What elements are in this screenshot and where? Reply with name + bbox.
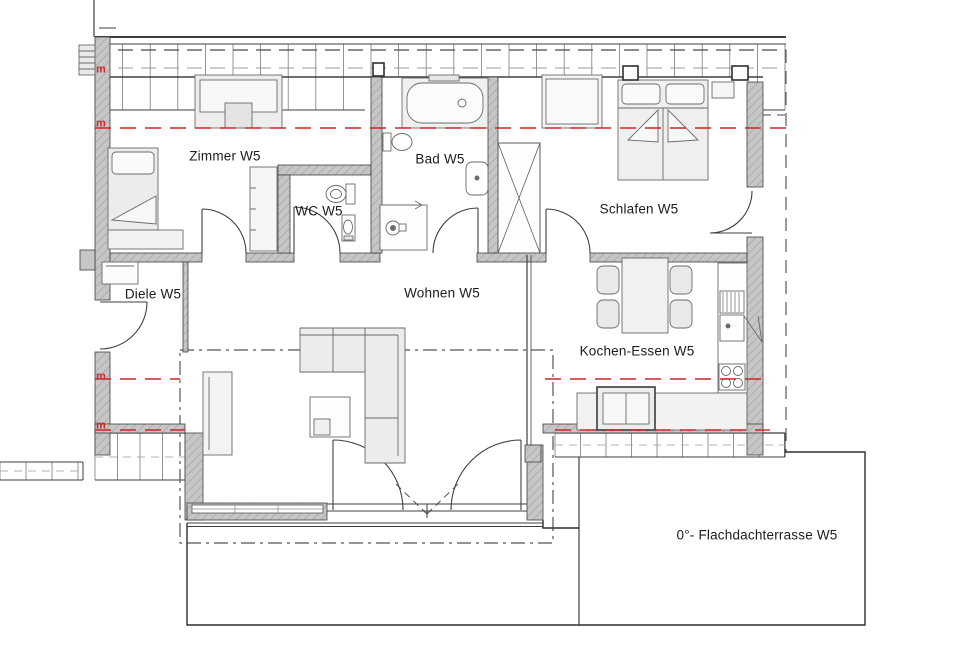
tub-faucet <box>429 75 459 81</box>
kitchen-sink-small <box>720 315 744 341</box>
terrace-french-doors[interactable] <box>327 440 527 518</box>
bad-toilet <box>392 134 412 151</box>
dining-table <box>622 258 668 333</box>
left-wall-window-hatch <box>79 45 95 75</box>
bad-door <box>433 208 478 253</box>
entrance-door <box>100 302 147 349</box>
meter-marker: m <box>96 421 106 432</box>
room-label-zimmer: Zimmer W5 <box>189 149 261 164</box>
meter-marker: m <box>96 119 106 130</box>
chair <box>597 300 619 328</box>
balcony-door <box>710 191 752 233</box>
desk-chair <box>225 103 252 128</box>
pillow-right <box>666 84 704 104</box>
chair <box>670 300 692 328</box>
room-label-bad: Bad W5 <box>415 152 464 167</box>
room-label-wohnen: Wohnen W5 <box>404 286 480 301</box>
room-label-diele: Diele W5 <box>125 287 181 302</box>
floor-plan: Zimmer W5 Bad W5 WC W5 Schlafen W5 Diele… <box>0 0 960 670</box>
sideboard <box>203 372 232 455</box>
room-label-terrasse: 0°- Flachdachterrasse W5 <box>676 528 837 543</box>
chair <box>597 266 619 294</box>
roof-rafter-grid-top <box>95 44 785 77</box>
built-in-closet <box>498 143 540 253</box>
room-label-kochen: Kochen-Essen W5 <box>580 344 695 359</box>
zimmer-door <box>202 209 246 253</box>
bed-bench <box>108 230 183 249</box>
room-label-schlafen: Schlafen W5 <box>600 202 679 217</box>
floor-plan-drawing <box>0 0 960 670</box>
bad-toilet-tank <box>383 133 391 151</box>
meter-marker: m <box>96 372 106 383</box>
toilet-tank <box>346 184 355 204</box>
diele-wardrobe <box>102 262 138 284</box>
kitchen-grate <box>720 291 744 313</box>
chair <box>670 266 692 294</box>
pillow-left <box>622 84 660 104</box>
meter-marker: m <box>96 65 106 76</box>
room-label-wc: WC W5 <box>295 204 343 219</box>
pillow <box>112 152 154 174</box>
nightstand <box>712 82 734 98</box>
neighbor-roof-grid <box>0 462 78 480</box>
schlafen-door <box>546 209 590 253</box>
wohnen-kochen-partition <box>525 255 541 462</box>
